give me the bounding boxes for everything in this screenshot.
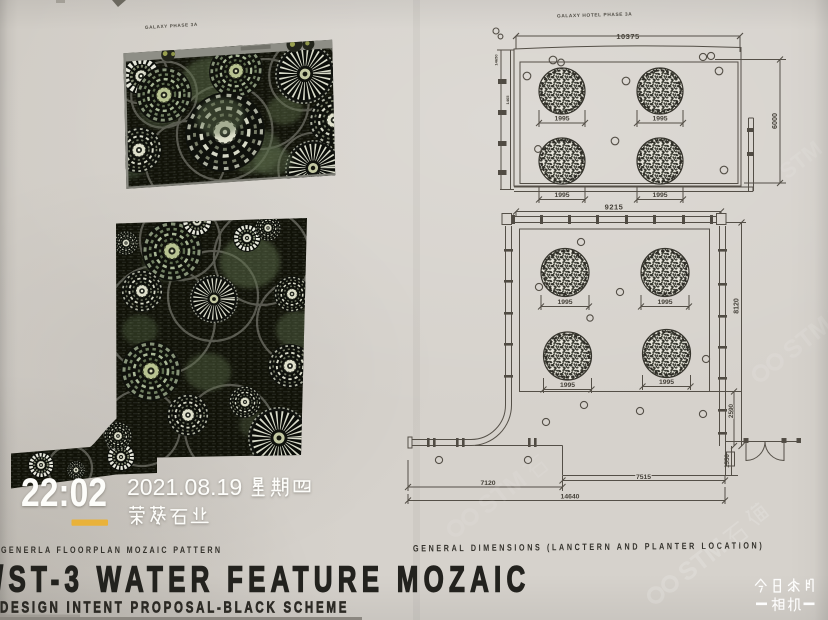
svg-text:14650: 14650 <box>494 54 499 66</box>
svg-text:1995: 1995 <box>554 116 569 123</box>
svg-text:9215: 9215 <box>605 203 624 212</box>
svg-text:10375: 10375 <box>616 32 639 41</box>
svg-text:/ST-3 WATER FEATURE MOZAIC: /ST-3 WATER FEATURE MOZAIC <box>0 559 530 599</box>
svg-text:GALAXY HOTEL PHASE 3A: GALAXY HOTEL PHASE 3A <box>557 12 632 20</box>
svg-text:STM: STM <box>473 466 532 521</box>
svg-text:1995: 1995 <box>659 379 674 386</box>
svg-text:1550: 1550 <box>724 454 731 468</box>
svg-text:8120: 8120 <box>734 298 741 314</box>
svg-text:1995: 1995 <box>554 192 569 199</box>
svg-text:DESIGN INTENT PROPOSAL-BLACK S: DESIGN INTENT PROPOSAL-BLACK SCHEME <box>0 598 349 616</box>
svg-text:1995: 1995 <box>657 299 672 306</box>
svg-text:1995: 1995 <box>560 382 575 389</box>
svg-text:1995: 1995 <box>652 192 667 199</box>
svg-text:STM: STM <box>775 136 827 184</box>
svg-text:6000: 6000 <box>770 113 779 129</box>
svg-text:14640: 14640 <box>561 494 580 501</box>
svg-text:7515: 7515 <box>636 474 651 481</box>
svg-text:22:02: 22:02 <box>21 471 107 515</box>
svg-text:1995: 1995 <box>557 299 572 306</box>
svg-text:2590: 2590 <box>728 403 735 418</box>
svg-text:STM: STM <box>778 311 828 366</box>
svg-text:1465: 1465 <box>505 95 510 105</box>
svg-text:GENERLA FLOORPLAN MOZAIC PATTE: GENERLA FLOORPLAN MOZAIC PATTERN <box>1 545 222 555</box>
svg-text:GALAXY PHASE 3A: GALAXY PHASE 3A <box>145 22 198 30</box>
svg-text:1995: 1995 <box>652 116 667 123</box>
svg-text:2021.08.19: 2021.08.19 <box>127 474 242 500</box>
